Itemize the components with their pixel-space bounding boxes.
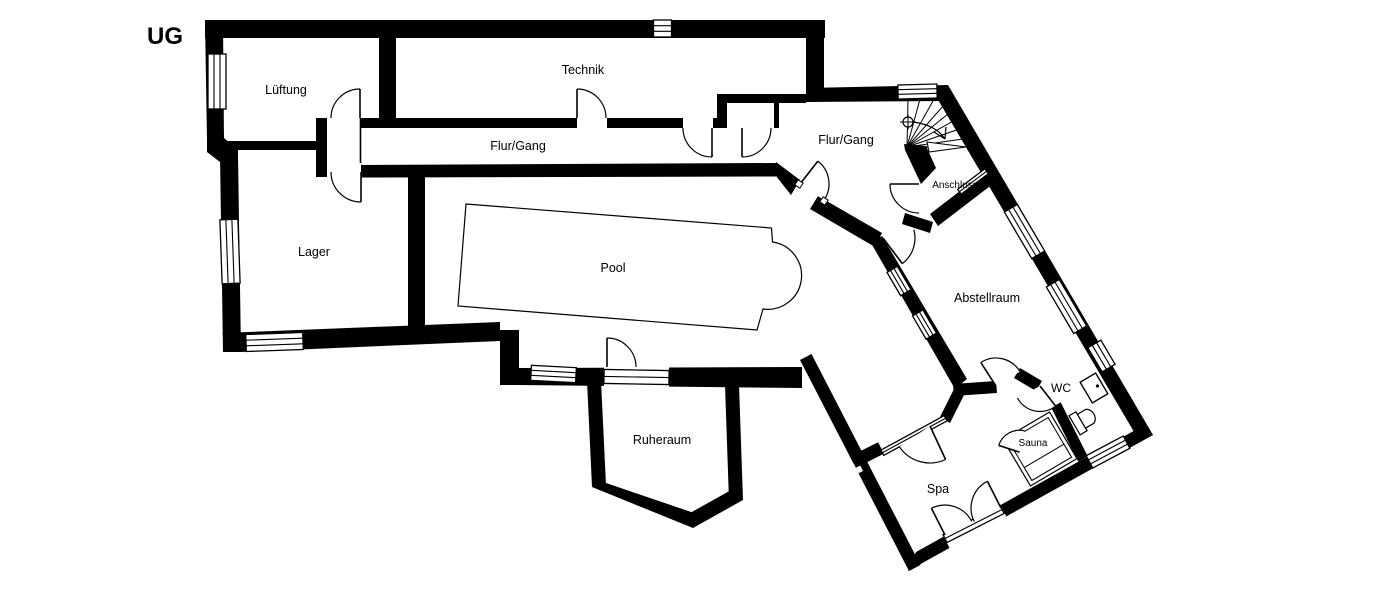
svg-text:Flur/Gang: Flur/Gang [490, 139, 546, 153]
svg-text:UG: UG [147, 23, 183, 50]
svg-text:Spa: Spa [927, 482, 949, 496]
svg-text:Ruheraum: Ruheraum [633, 433, 691, 447]
svg-text:Lüftung: Lüftung [265, 83, 307, 97]
svg-text:Sauna: Sauna [1019, 438, 1048, 449]
svg-text:Flur/Gang: Flur/Gang [818, 133, 874, 147]
svg-text:Abstellraum: Abstellraum [954, 291, 1020, 305]
svg-text:Technik: Technik [562, 63, 605, 77]
svg-text:Lager: Lager [298, 245, 330, 259]
svg-text:Pool: Pool [600, 261, 625, 275]
svg-text:WC: WC [1051, 381, 1071, 395]
svg-text:Anschluss: Anschluss [932, 180, 978, 191]
